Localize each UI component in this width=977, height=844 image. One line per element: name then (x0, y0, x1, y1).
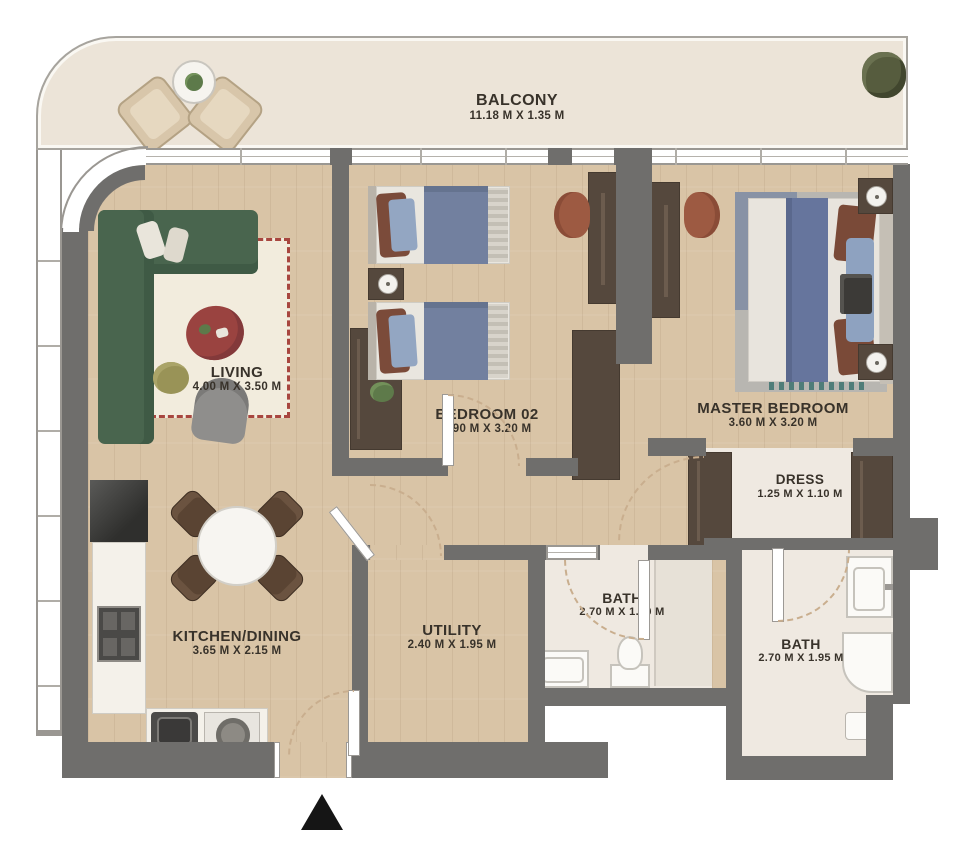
floor-plan: BALCONY 11.18 M X 1.35 M LIVING 4.00 M X… (0, 0, 977, 844)
window-mullion (845, 148, 847, 165)
room-label-living: LIVING 4.00 M X 3.50 M (193, 364, 282, 394)
plant (185, 73, 203, 91)
wall-fixture (845, 712, 867, 740)
room-dims: 1.25 M X 1.10 M (757, 488, 842, 501)
wall (526, 458, 578, 476)
bathroom-sink (846, 556, 893, 618)
desk (650, 182, 680, 318)
room-dims: 3.65 M X 2.15 M (173, 645, 302, 658)
window (546, 545, 598, 560)
room-name: BALCONY (470, 92, 565, 110)
wall (616, 164, 652, 364)
wall (332, 458, 448, 476)
window-mullion (760, 148, 762, 165)
window-mullion (505, 148, 507, 165)
toilet-bowl (617, 636, 643, 670)
left-facade-windows (36, 150, 62, 736)
bed (368, 186, 510, 264)
lamp (378, 274, 398, 294)
wardrobe (572, 330, 620, 480)
entrance-arrow (301, 794, 343, 830)
wall (866, 695, 893, 756)
desk (588, 172, 618, 304)
room-name: MASTER BEDROOM (697, 400, 848, 417)
room-label-master: MASTER BEDROOM 3.60 M X 3.20 M (697, 400, 848, 430)
room-dims: 11.18 M X 1.35 M (470, 110, 565, 123)
shower-area (654, 560, 712, 686)
room-label-balcony: BALCONY 11.18 M X 1.35 M (470, 92, 565, 124)
desk-chair (554, 192, 590, 238)
wall (330, 148, 352, 165)
room-label-bath2: BATH 2.70 M X 1.95 M (758, 636, 843, 665)
wall-column (893, 518, 938, 570)
wall (726, 756, 893, 780)
cooktop (97, 606, 141, 662)
wall (62, 228, 88, 764)
lamp (866, 186, 887, 207)
window-band (146, 148, 908, 165)
room-name: BATH (758, 636, 843, 652)
desk-chair (684, 192, 720, 238)
wall (614, 148, 652, 165)
room-label-dress: DRESS 1.25 M X 1.10 M (757, 472, 842, 500)
pouf (153, 362, 189, 394)
wall (528, 545, 545, 752)
wall (528, 688, 742, 706)
window-mullion (240, 148, 242, 165)
potted-plant (862, 52, 906, 98)
wall (548, 148, 572, 165)
lamp (866, 352, 887, 373)
wall (853, 438, 893, 456)
room-dims: 3.60 M X 3.20 M (697, 417, 848, 430)
bed-tray (840, 274, 872, 314)
balcony-table (172, 60, 216, 104)
wall (352, 742, 608, 778)
refrigerator (90, 480, 148, 542)
room-label-utility: UTILITY 2.40 M X 1.95 M (408, 622, 497, 652)
wall (648, 438, 706, 456)
room-label-kitchen: KITCHEN/DINING 3.65 M X 2.15 M (173, 628, 302, 658)
window-mullion (675, 148, 677, 165)
room-name: KITCHEN/DINING (173, 628, 302, 645)
room-dims: 2.70 M X 1.95 M (758, 652, 843, 665)
bed (368, 302, 510, 380)
shower (842, 632, 893, 693)
dining-table (197, 506, 277, 586)
room-dims: 2.40 M X 1.95 M (408, 639, 497, 652)
window-mullion (420, 148, 422, 165)
wall (332, 164, 349, 464)
plant (370, 382, 394, 402)
door-frame (274, 742, 280, 778)
room-name: DRESS (757, 472, 842, 488)
wall (62, 742, 274, 778)
door-opening (600, 545, 648, 560)
room-name: LIVING (193, 364, 282, 381)
room-dims: 4.00 M X 3.50 M (193, 381, 282, 394)
wall (726, 545, 742, 780)
room-name: UTILITY (408, 622, 497, 639)
wardrobe (851, 452, 893, 548)
wall (893, 164, 910, 704)
